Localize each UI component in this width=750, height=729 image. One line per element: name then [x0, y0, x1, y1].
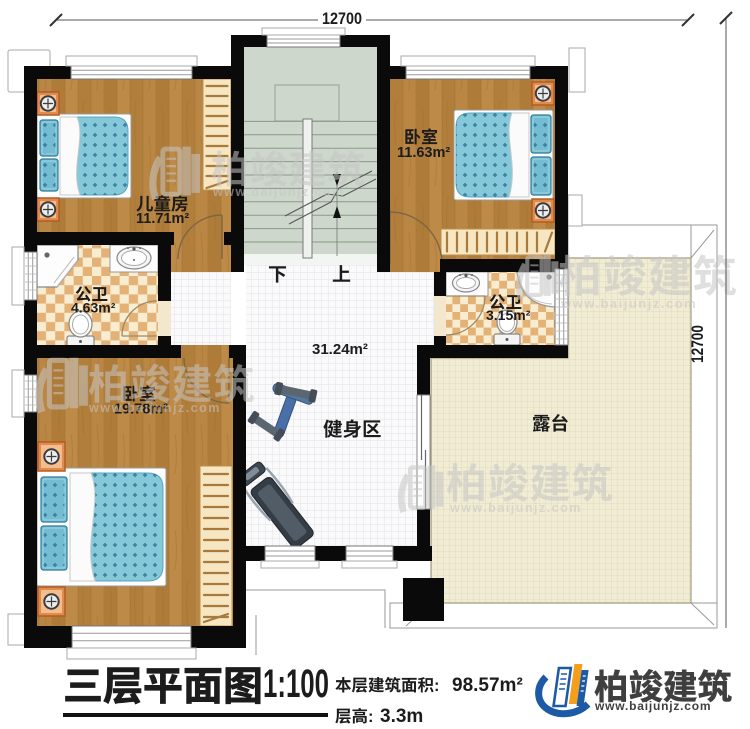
svg-text:1:100: 1:100 [263, 662, 329, 706]
svg-text:www.baijunjz.com: www.baijunjz.com [212, 185, 345, 199]
svg-text:3.15m²: 3.15m² [486, 307, 531, 323]
svg-text:12700: 12700 [688, 325, 707, 363]
svg-text:www.baijunjz.com: www.baijunjz.com [88, 401, 221, 415]
svg-text:11.63m²: 11.63m² [397, 145, 450, 161]
svg-text:www.baijunjz.com: www.baijunjz.com [594, 699, 711, 713]
svg-text:www.baijunjz.com: www.baijunjz.com [560, 296, 697, 311]
svg-text:3.3m: 3.3m [380, 706, 423, 727]
svg-text::: : [368, 708, 374, 726]
svg-text:31.24m²: 31.24m² [312, 341, 368, 358]
svg-text:4.63m²: 4.63m² [71, 300, 116, 316]
svg-text:12700: 12700 [322, 9, 362, 28]
svg-text:www.baijunjz.com: www.baijunjz.com [449, 501, 582, 515]
svg-text:98.57m²: 98.57m² [452, 675, 523, 696]
svg-text:11.71m²: 11.71m² [136, 211, 189, 227]
svg-text::: : [434, 677, 440, 695]
